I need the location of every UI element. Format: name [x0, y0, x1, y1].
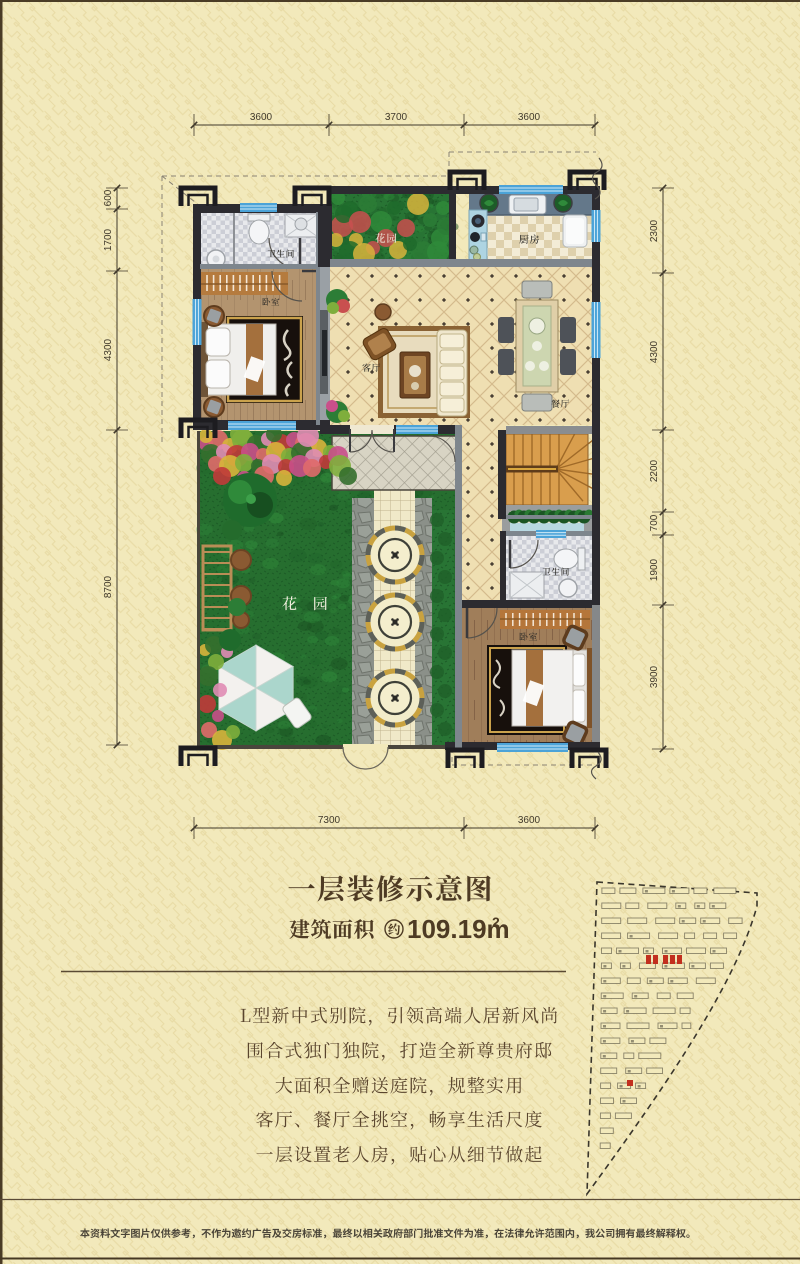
svg-text:1900: 1900: [649, 558, 660, 581]
svg-text:1700: 1700: [103, 228, 114, 251]
svg-text:2200: 2200: [649, 459, 660, 482]
svg-text:3700: 3700: [385, 112, 408, 123]
svg-text:7300: 7300: [318, 815, 341, 826]
svg-text:8700: 8700: [103, 575, 114, 598]
svg-text:2: 2: [492, 914, 500, 930]
svg-text:600: 600: [103, 189, 114, 206]
svg-text:4300: 4300: [103, 338, 114, 361]
svg-text:3600: 3600: [250, 112, 273, 123]
svg-text:2300: 2300: [649, 219, 660, 242]
svg-text:4300: 4300: [649, 340, 660, 363]
svg-text:3600: 3600: [518, 815, 541, 826]
svg-text:3900: 3900: [649, 665, 660, 688]
svg-text:3600: 3600: [518, 112, 541, 123]
svg-text:700: 700: [649, 514, 660, 531]
